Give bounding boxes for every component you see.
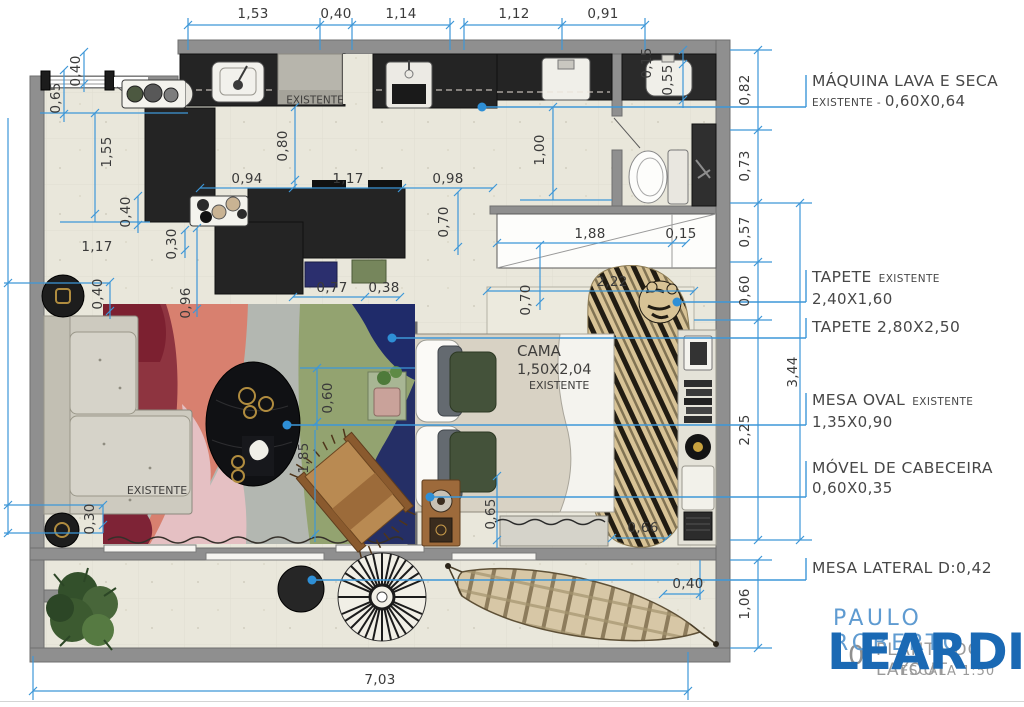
dimension-label: 0,66: [627, 520, 658, 536]
callout-title: MÓVEL DE CABECEIRA: [812, 459, 993, 477]
plan-label-bed-label: CAMA1,50X2,04EXISTENTE: [517, 342, 592, 393]
dimension-label: 0,73: [737, 150, 753, 181]
callout-subtitle-value: 0,60X0,35: [812, 479, 893, 497]
dimension-label: 0,80: [275, 130, 291, 161]
callout-title: MÁQUINA LAVA E SECA: [812, 72, 998, 90]
callout-title-suffix: EXISTENTE: [879, 273, 940, 285]
callout-tapete-280x250: TAPETE 2,80X2,50: [812, 317, 960, 337]
dimension-label: 1,12: [498, 6, 529, 22]
dimension-label: 0,38: [368, 280, 399, 296]
dimension-label: 0,40: [90, 278, 106, 309]
dimension-label: 1,17: [81, 239, 112, 255]
dimension-label: 0,60: [737, 275, 753, 306]
annotation-overlay: 1,530,401,141,120,910,820,730,570,602,25…: [0, 0, 1024, 707]
dimension-label: 0,40: [68, 55, 84, 86]
dimension-label: 1,53: [237, 6, 268, 22]
callout-mesa-lateral: MESA LATERAL D:0,42: [812, 558, 992, 578]
callout-subtitle: 2,40X1,60: [812, 289, 940, 309]
dimension-label: 0,77: [316, 280, 347, 296]
plan-label-line: 1,50X2,04: [517, 361, 592, 379]
plan-label-sofa-existente: EXISTENTE: [127, 484, 187, 498]
dimension-label: 7,03: [364, 672, 395, 688]
dimension-label: 0,55: [660, 64, 676, 95]
callout-subtitle: EXISTENTE - 0,60X0,64: [812, 91, 998, 113]
callout-title-suffix: EXISTENTE: [912, 396, 973, 408]
dimension-label: 0,60: [320, 382, 336, 413]
dimension-label: 1,06: [737, 588, 753, 619]
plan-label-line: EXISTENTE: [127, 484, 187, 498]
dimension-label: 2,25: [737, 414, 753, 445]
callout-title: TAPETE 2,80X2,50: [812, 318, 960, 336]
floor-plan-canvas: 1,530,401,141,120,910,820,730,570,602,25…: [0, 0, 1024, 707]
callout-tapete-existente: TAPETEEXISTENTE2,40X1,60: [812, 267, 940, 309]
dimension-label: 0,40: [320, 6, 351, 22]
dimension-label: 0,40: [118, 196, 134, 227]
plan-label-line: EXISTENTE: [529, 379, 592, 393]
callout-subtitle-value: 0,60X0,64: [885, 92, 966, 110]
dimension-label: 1,55: [99, 136, 115, 167]
callout-title: MESA LATERAL D:0,42: [812, 559, 992, 577]
dimension-label: 0,82: [737, 74, 753, 105]
dimension-label: 0,40: [672, 576, 703, 592]
dimension-label: 0,57: [737, 216, 753, 247]
dimension-label: 0,15: [665, 226, 696, 242]
dimension-label: 1,00: [532, 134, 548, 165]
dimension-label: 0,98: [432, 171, 463, 187]
dimension-label: 0,91: [587, 6, 618, 22]
logo-leardi: LEARDI: [827, 623, 1024, 681]
callout-maquina-lava-e-seca: MÁQUINA LAVA E SECAEXISTENTE - 0,60X0,64: [812, 71, 998, 113]
dimension-label: 0,15: [639, 47, 655, 78]
dimension-label: 0,96: [178, 287, 194, 318]
dimension-label: 0,94: [231, 171, 262, 187]
dimension-label: 2,22: [596, 274, 627, 290]
dimension-label: 0,65: [483, 498, 499, 529]
callout-subtitle-value: 2,40X1,60: [812, 290, 893, 308]
callout-title: MESA OVAL: [812, 391, 905, 409]
dimension-label: 3,44: [785, 356, 801, 387]
dimension-label: 0,30: [164, 228, 180, 259]
callout-subtitle: 1,35X0,90: [812, 412, 973, 432]
plan-label-line: CAMA: [517, 342, 592, 361]
dimension-label: 0,30: [82, 503, 98, 534]
callout-mesa-oval: MESA OVALEXISTENTE1,35X0,90: [812, 390, 973, 432]
dimension-label: 1,17: [332, 171, 363, 187]
dimension-label: 0,65: [48, 82, 64, 113]
dimension-label: 0,70: [518, 284, 534, 315]
plan-label-kitchen-existente: EXISTENTE: [286, 94, 344, 107]
bottom-divider: [0, 701, 1024, 702]
callout-subtitle-small: EXISTENTE -: [812, 97, 885, 109]
callout-title: TAPETE: [812, 268, 872, 286]
callout-movel-de-cabeceira: MÓVEL DE CABECEIRA0,60X0,35: [812, 458, 993, 498]
plan-label-line: EXISTENTE: [286, 94, 344, 107]
callout-subtitle: 0,60X0,35: [812, 478, 993, 498]
dimension-label: 0,70: [436, 206, 452, 237]
dimension-label: 1,85: [296, 442, 312, 473]
dimension-label: 1,14: [385, 6, 416, 22]
callout-subtitle-value: 1,35X0,90: [812, 413, 893, 431]
dimension-label: 1,88: [574, 226, 605, 242]
